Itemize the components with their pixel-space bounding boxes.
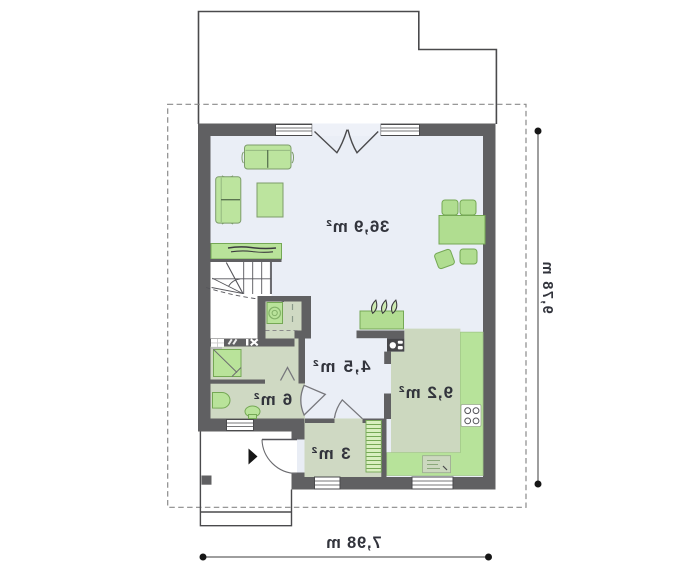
svg-text:36,9 m²: 36,9 m² [326, 217, 390, 236]
svg-text:9,2 m²: 9,2 m² [398, 383, 453, 402]
svg-text:3 m²: 3 m² [310, 444, 350, 463]
svg-text:4,5 m²: 4,5 m² [311, 357, 370, 376]
svg-text:6 m²: 6 m² [253, 390, 292, 409]
svg-text:9,78 m: 9,78 m [539, 260, 555, 314]
svg-text:7,98 m: 7,98 m [325, 534, 381, 552]
